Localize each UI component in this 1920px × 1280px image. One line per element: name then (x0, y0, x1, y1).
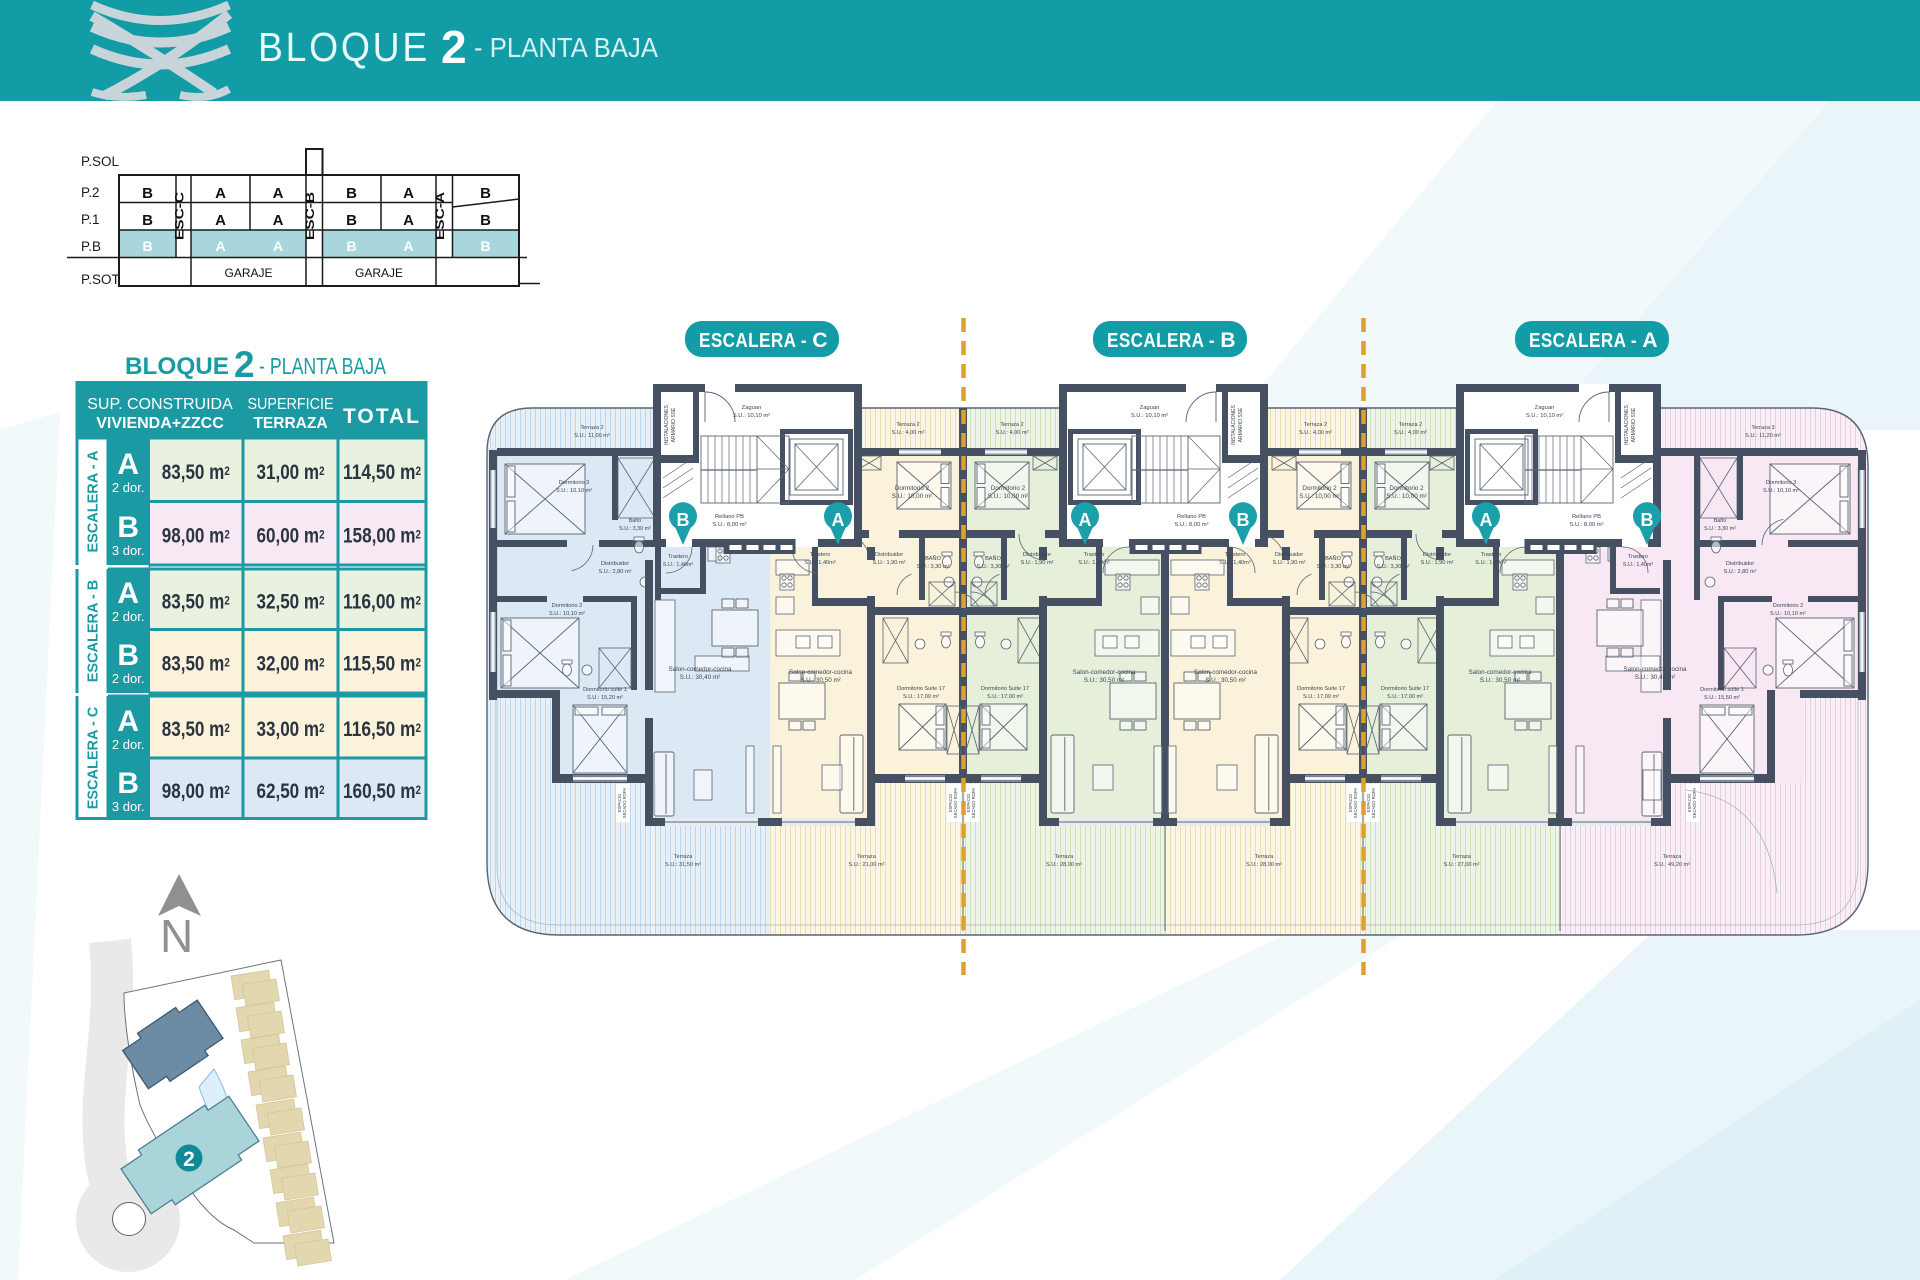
svg-text:ARMARIO SSE: ARMARIO SSE (671, 407, 677, 442)
svg-text:B: B (142, 238, 152, 254)
svg-text:ESC-A: ESC-A (433, 192, 447, 240)
svg-text:S.U.: 28,00 m²: S.U.: 28,00 m² (1046, 862, 1082, 868)
svg-text:B: B (346, 185, 357, 202)
svg-text:S.U.: 17,00 m²: S.U.: 17,00 m² (903, 694, 939, 700)
svg-text:S.U.: 3,30 m²: S.U.: 3,30 m² (917, 564, 950, 570)
svg-text:VIVIENDA+ZZCC: VIVIENDA+ZZCC (96, 415, 224, 432)
svg-text:A: A (832, 510, 845, 530)
svg-text:60,00 m2: 60,00 m2 (257, 524, 325, 547)
svg-text:S.U.: 10,00 m²: S.U.: 10,00 m² (988, 493, 1029, 500)
svg-text:A: A (403, 185, 414, 202)
svg-text:Dormitorio 2: Dormitorio 2 (552, 603, 582, 609)
svg-text:S.U.: 3,30 m²: S.U.: 3,30 m² (1704, 526, 1736, 532)
svg-text:S.U.: 17,00 m²: S.U.: 17,00 m² (1387, 694, 1423, 700)
svg-text:A: A (117, 448, 139, 481)
svg-text:Trastero: Trastero (1481, 552, 1502, 558)
svg-text:ESCALERA -: ESCALERA - (1107, 330, 1215, 352)
svg-text:S.U.: 1,40m²: S.U.: 1,40m² (663, 562, 693, 568)
svg-text:Distribuidor: Distribuidor (875, 552, 903, 558)
svg-text:INSTALACIONES: INSTALACIONES (1624, 405, 1630, 445)
svg-text:Dormitorio suite 1: Dormitorio suite 1 (1700, 687, 1744, 693)
svg-text:INSTALACIONES: INSTALACIONES (1231, 405, 1237, 445)
svg-text:GARAJE: GARAJE (224, 266, 272, 280)
svg-text:2 dor.: 2 dor. (112, 480, 145, 495)
svg-text:S.U.: 1,40m²: S.U.: 1,40m² (1219, 560, 1251, 566)
svg-text:Rellano PB: Rellano PB (1572, 514, 1601, 520)
svg-text:Terraza: Terraza (674, 854, 694, 860)
svg-text:Trastero: Trastero (1628, 554, 1648, 560)
svg-text:Baño: Baño (1714, 518, 1727, 524)
svg-text:Rellano PB: Rellano PB (715, 514, 744, 520)
svg-text:158,00 m2: 158,00 m2 (343, 524, 421, 547)
svg-text:S.U.: 17,00 m²: S.U.: 17,00 m² (1303, 694, 1339, 700)
svg-text:Rellano PB: Rellano PB (1177, 514, 1206, 520)
svg-text:160,50 m2: 160,50 m2 (343, 780, 421, 803)
svg-text:- PLANTA BAJA: - PLANTA BAJA (259, 353, 387, 379)
svg-text:Trastero: Trastero (1084, 552, 1105, 558)
svg-text:2 dor.: 2 dor. (112, 737, 145, 752)
svg-text:S.U.: 10,10 m²: S.U.: 10,10 m² (1526, 413, 1563, 419)
svg-text:Dormitorio 2: Dormitorio 2 (1389, 485, 1424, 492)
svg-text:Salon-comedor-cocina: Salon-comedor-cocina (1194, 669, 1257, 676)
svg-text:S.U.: 1,40m²: S.U.: 1,40m² (1623, 562, 1653, 568)
svg-text:S.U.: 15,50 m²: S.U.: 15,50 m² (1704, 695, 1740, 701)
svg-text:A: A (1642, 329, 1657, 352)
svg-text:A: A (215, 185, 226, 202)
svg-text:Salon-comedor-cocina: Salon-comedor-cocina (1624, 666, 1687, 673)
svg-text:B: B (346, 212, 357, 229)
svg-text:S.U.: 1,90 m²: S.U.: 1,90 m² (873, 560, 906, 566)
svg-text:S.U.: 3,30 m²: S.U.: 3,30 m² (1317, 564, 1350, 570)
svg-text:Terraza: Terraza (1255, 854, 1275, 860)
svg-text:A: A (215, 238, 225, 254)
svg-text:Terraza 2: Terraza 2 (896, 422, 919, 428)
svg-text:Salon-comedor-cocina: Salon-comedor-cocina (1073, 669, 1136, 676)
svg-text:B: B (677, 510, 690, 530)
svg-text:SECADO ROPA: SECADO ROPA (1353, 788, 1358, 819)
svg-text:P.B: P.B (81, 239, 101, 254)
svg-text:S.U.: 10,00 m²: S.U.: 10,00 m² (1386, 493, 1427, 500)
svg-text:62,50 m2: 62,50 m2 (257, 780, 325, 803)
svg-text:Trastero: Trastero (1225, 552, 1246, 558)
svg-text:S.U.: 1,40m²: S.U.: 1,40m² (804, 560, 836, 566)
svg-text:B: B (480, 185, 491, 202)
svg-text:B: B (480, 212, 491, 229)
svg-text:N: N (160, 910, 193, 962)
svg-text:S.U.: 2,80 m²: S.U.: 2,80 m² (1724, 569, 1757, 575)
svg-text:Dormitorio 2: Dormitorio 2 (1773, 603, 1803, 609)
svg-text:Dormitorio 3: Dormitorio 3 (559, 480, 589, 486)
svg-text:Dormitorio 2: Dormitorio 2 (895, 485, 930, 492)
svg-text:S.U.: 28,00 m²: S.U.: 28,00 m² (1246, 862, 1282, 868)
svg-text:ARMARIO SSE: ARMARIO SSE (1631, 407, 1637, 442)
svg-text:S.U.: 30,50 m²: S.U.: 30,50 m² (1480, 677, 1521, 684)
svg-text:S.U.: 4,00 m²: S.U.: 4,00 m² (1299, 430, 1332, 436)
svg-text:S.U.: 10,00 m²: S.U.: 10,00 m² (892, 493, 933, 500)
svg-text:S.U.: 10,10 m²: S.U.: 10,10 m² (1131, 413, 1168, 419)
svg-text:SECADO ROPA: SECADO ROPA (1371, 788, 1376, 819)
svg-text:BAÑO: BAÑO (1325, 555, 1342, 562)
svg-text:S.U.: 3,30 m²: S.U.: 3,30 m² (977, 564, 1010, 570)
svg-text:2: 2 (441, 21, 467, 73)
svg-text:A: A (403, 238, 413, 254)
svg-text:S.U.: 21,00 m²: S.U.: 21,00 m² (848, 862, 884, 868)
svg-text:83,50 m2: 83,50 m2 (162, 718, 230, 741)
svg-text:116,50 m2: 116,50 m2 (343, 718, 421, 741)
svg-text:33,00 m2: 33,00 m2 (257, 718, 325, 741)
svg-text:S.U.: 30,50 m²: S.U.: 30,50 m² (1205, 677, 1246, 684)
svg-text:S.U.: 30,50 m²: S.U.: 30,50 m² (800, 677, 841, 684)
svg-text:2 dor.: 2 dor. (112, 609, 145, 624)
svg-text:A: A (273, 212, 284, 229)
svg-text:Terraza 2: Terraza 2 (1399, 422, 1422, 428)
svg-text:INSTALACIONES: INSTALACIONES (664, 405, 670, 445)
svg-text:P.2: P.2 (81, 185, 100, 200)
svg-text:A: A (1480, 510, 1493, 530)
svg-text:32,50 m2: 32,50 m2 (257, 590, 325, 613)
svg-text:ARMARIO SSE: ARMARIO SSE (1238, 407, 1244, 442)
svg-text:SUPERFICIE: SUPERFICIE (248, 396, 334, 413)
svg-text:Distribuidor: Distribuidor (1023, 552, 1051, 558)
svg-text:Terraza: Terraza (857, 854, 877, 860)
svg-text:Distribuidor: Distribuidor (1423, 552, 1451, 558)
svg-text:98,00 m2: 98,00 m2 (162, 780, 230, 803)
svg-text:Zaguan: Zaguan (742, 405, 762, 411)
svg-text:Dormitorio Suite 17: Dormitorio Suite 17 (981, 686, 1029, 692)
svg-text:S.U.: 30,40 m²: S.U.: 30,40 m² (680, 674, 721, 681)
svg-text:P.SOT: P.SOT (81, 272, 120, 287)
svg-text:Trastero: Trastero (668, 554, 688, 560)
svg-text:S.U.: 1,90 m²: S.U.: 1,90 m² (1273, 560, 1306, 566)
svg-text:Dormitorio Suite 17: Dormitorio Suite 17 (1381, 686, 1429, 692)
svg-text:A: A (273, 185, 284, 202)
svg-text:S.U.: 8,00 m²: S.U.: 8,00 m² (1569, 522, 1603, 528)
svg-text:S.U.: 11,00 m²: S.U.: 11,00 m² (574, 433, 610, 439)
svg-text:ESCALERA - C: ESCALERA - C (86, 706, 102, 809)
svg-text:BAÑO: BAÑO (1385, 555, 1402, 562)
svg-text:B: B (117, 639, 139, 672)
svg-text:ESC-B: ESC-B (303, 192, 317, 240)
svg-text:S.U.: 8,00 m²: S.U.: 8,00 m² (712, 522, 746, 528)
svg-text:ESCALERA - A: ESCALERA - A (86, 450, 102, 553)
svg-text:115,50 m2: 115,50 m2 (343, 652, 421, 675)
svg-text:C: C (812, 329, 827, 352)
svg-text:S.U.: 49,20 m²: S.U.: 49,20 m² (1654, 862, 1690, 868)
svg-text:Distribuidor: Distribuidor (601, 561, 629, 567)
svg-text:SUP. CONSTRUIDA: SUP. CONSTRUIDA (87, 396, 233, 413)
svg-text:ESCALERA -: ESCALERA - (699, 330, 807, 352)
svg-text:S.U.: 3,30 m²: S.U.: 3,30 m² (1377, 564, 1410, 570)
svg-text:2: 2 (183, 1148, 195, 1171)
svg-text:S.U.: 10,10 m²: S.U.: 10,10 m² (1770, 611, 1806, 617)
svg-text:A: A (1079, 510, 1092, 530)
svg-text:B: B (480, 238, 490, 254)
svg-text:Dormitorio Suite 17: Dormitorio Suite 17 (1297, 686, 1345, 692)
svg-text:98,00 m2: 98,00 m2 (162, 524, 230, 547)
svg-text:S.U.: 10,00 m²: S.U.: 10,00 m² (1299, 493, 1340, 500)
svg-text:A: A (117, 705, 139, 738)
svg-text:Salon-comedor-cocina: Salon-comedor-cocina (1469, 669, 1532, 676)
svg-text:Baño: Baño (629, 518, 642, 524)
svg-text:Zaguan: Zaguan (1140, 405, 1160, 411)
svg-text:S.U.: 1,90 m²: S.U.: 1,90 m² (1421, 560, 1454, 566)
svg-text:83,50 m2: 83,50 m2 (162, 590, 230, 613)
svg-text:2: 2 (234, 344, 255, 385)
svg-text:Salon-comedor-cocina: Salon-comedor-cocina (669, 666, 732, 673)
svg-text:S.U.: 17,00 m²: S.U.: 17,00 m² (987, 694, 1023, 700)
svg-text:83,50 m2: 83,50 m2 (162, 652, 230, 675)
svg-text:3 dor.: 3 dor. (112, 543, 145, 558)
svg-text:P.SOL: P.SOL (81, 154, 120, 169)
svg-text:ESC-C: ESC-C (173, 192, 187, 240)
svg-text:31,00 m2: 31,00 m2 (257, 461, 325, 484)
svg-text:116,00 m2: 116,00 m2 (343, 590, 421, 613)
svg-text:32,00 m2: 32,00 m2 (257, 652, 325, 675)
svg-text:Dormitorio 3: Dormitorio 3 (1766, 480, 1796, 486)
svg-text:BAÑO: BAÑO (925, 555, 942, 562)
svg-text:S.U.: 4,00 m²: S.U.: 4,00 m² (996, 430, 1029, 436)
svg-text:Distribuidor: Distribuidor (1275, 552, 1303, 558)
svg-text:TOTAL: TOTAL (343, 405, 421, 428)
svg-text:B: B (142, 212, 153, 229)
svg-text:Trastero: Trastero (810, 552, 831, 558)
svg-text:2 dor.: 2 dor. (112, 671, 145, 686)
svg-text:Dormitorio 2: Dormitorio 2 (1302, 485, 1337, 492)
svg-text:S.U.: 1,90 m²: S.U.: 1,90 m² (1021, 560, 1054, 566)
svg-text:A: A (215, 212, 226, 229)
svg-text:A: A (117, 577, 139, 610)
svg-text:Terraza: Terraza (1452, 854, 1472, 860)
svg-text:B: B (117, 767, 139, 800)
svg-text:Terraza 3: Terraza 3 (1751, 425, 1774, 431)
svg-text:Salon-comedor-cocina: Salon-comedor-cocina (789, 669, 852, 676)
svg-text:Distribuidor: Distribuidor (1726, 561, 1754, 567)
svg-text:S.U.: 11,20 m²: S.U.: 11,20 m² (1745, 433, 1781, 439)
svg-text:Terraza 2: Terraza 2 (1000, 422, 1023, 428)
svg-text:S.U.: 2,80 m²: S.U.: 2,80 m² (599, 569, 632, 575)
svg-text:Dormitorio suite 1: Dormitorio suite 1 (583, 687, 627, 693)
svg-text:S.U.: 10,10 m²: S.U.: 10,10 m² (556, 488, 592, 494)
svg-text:BLOQUE: BLOQUE (125, 353, 229, 380)
svg-text:S.U.: 10,10 m²: S.U.: 10,10 m² (1763, 488, 1799, 494)
svg-text:S.U.: 8,00 m²: S.U.: 8,00 m² (1174, 522, 1208, 528)
svg-text:S.U.: 3,30 m²: S.U.: 3,30 m² (619, 526, 651, 532)
svg-text:A: A (273, 238, 283, 254)
svg-text:Terraza 2: Terraza 2 (580, 425, 603, 431)
svg-text:S.U.: 30,40 m²: S.U.: 30,40 m² (1635, 674, 1676, 681)
svg-text:P.1: P.1 (81, 212, 100, 227)
svg-text:83,50 m2: 83,50 m2 (162, 461, 230, 484)
svg-text:Terraza 2: Terraza 2 (1304, 422, 1327, 428)
svg-text:BAÑO: BAÑO (985, 555, 1002, 562)
svg-text:S.U.: 10,10 m²: S.U.: 10,10 m² (733, 413, 770, 419)
svg-text:SECADO ROPA: SECADO ROPA (622, 788, 627, 819)
svg-text:ESCALERA - B: ESCALERA - B (86, 580, 102, 683)
svg-text:Terraza: Terraza (1663, 854, 1683, 860)
svg-text:Terraza: Terraza (1055, 854, 1075, 860)
svg-text:SECADO ROPA: SECADO ROPA (971, 788, 976, 819)
svg-text:S.U.: 30,50 m²: S.U.: 30,50 m² (1084, 677, 1125, 684)
svg-text:A: A (403, 212, 414, 229)
svg-text:3 dor.: 3 dor. (112, 799, 145, 814)
svg-text:SECADO ROPA: SECADO ROPA (1692, 788, 1697, 819)
svg-text:TERRAZA: TERRAZA (253, 415, 327, 432)
svg-text:S.U.: 4,00 m²: S.U.: 4,00 m² (1394, 430, 1427, 436)
svg-text:BLOQUE: BLOQUE (258, 24, 430, 70)
svg-text:S.U.: 10,10 m²: S.U.: 10,10 m² (549, 611, 585, 617)
svg-text:S.U.: 31,50 m²: S.U.: 31,50 m² (665, 862, 701, 868)
svg-text:Zaguan: Zaguan (1535, 405, 1555, 411)
svg-text:S.U.: 4,00 m²: S.U.: 4,00 m² (892, 430, 925, 436)
svg-text:B: B (117, 511, 139, 544)
svg-text:114,50 m2: 114,50 m2 (343, 461, 421, 484)
svg-text:B: B (1220, 329, 1235, 352)
svg-text:- PLANTA BAJA: - PLANTA BAJA (474, 32, 658, 63)
svg-text:GARAJE: GARAJE (355, 266, 403, 280)
svg-text:ESCALERA -: ESCALERA - (1529, 330, 1637, 352)
svg-text:SECADO ROPA: SECADO ROPA (953, 788, 958, 819)
svg-text:S.U.: 15,20 m²: S.U.: 15,20 m² (587, 695, 623, 701)
svg-text:B: B (142, 185, 153, 202)
svg-text:B: B (1237, 510, 1250, 530)
svg-text:S.U.: 27,00 m²: S.U.: 27,00 m² (1443, 862, 1479, 868)
svg-text:Dormitorio Suite 17: Dormitorio Suite 17 (897, 686, 945, 692)
svg-text:B: B (1641, 510, 1654, 530)
svg-text:B: B (346, 238, 356, 254)
svg-text:Dormitorio 2: Dormitorio 2 (991, 485, 1026, 492)
